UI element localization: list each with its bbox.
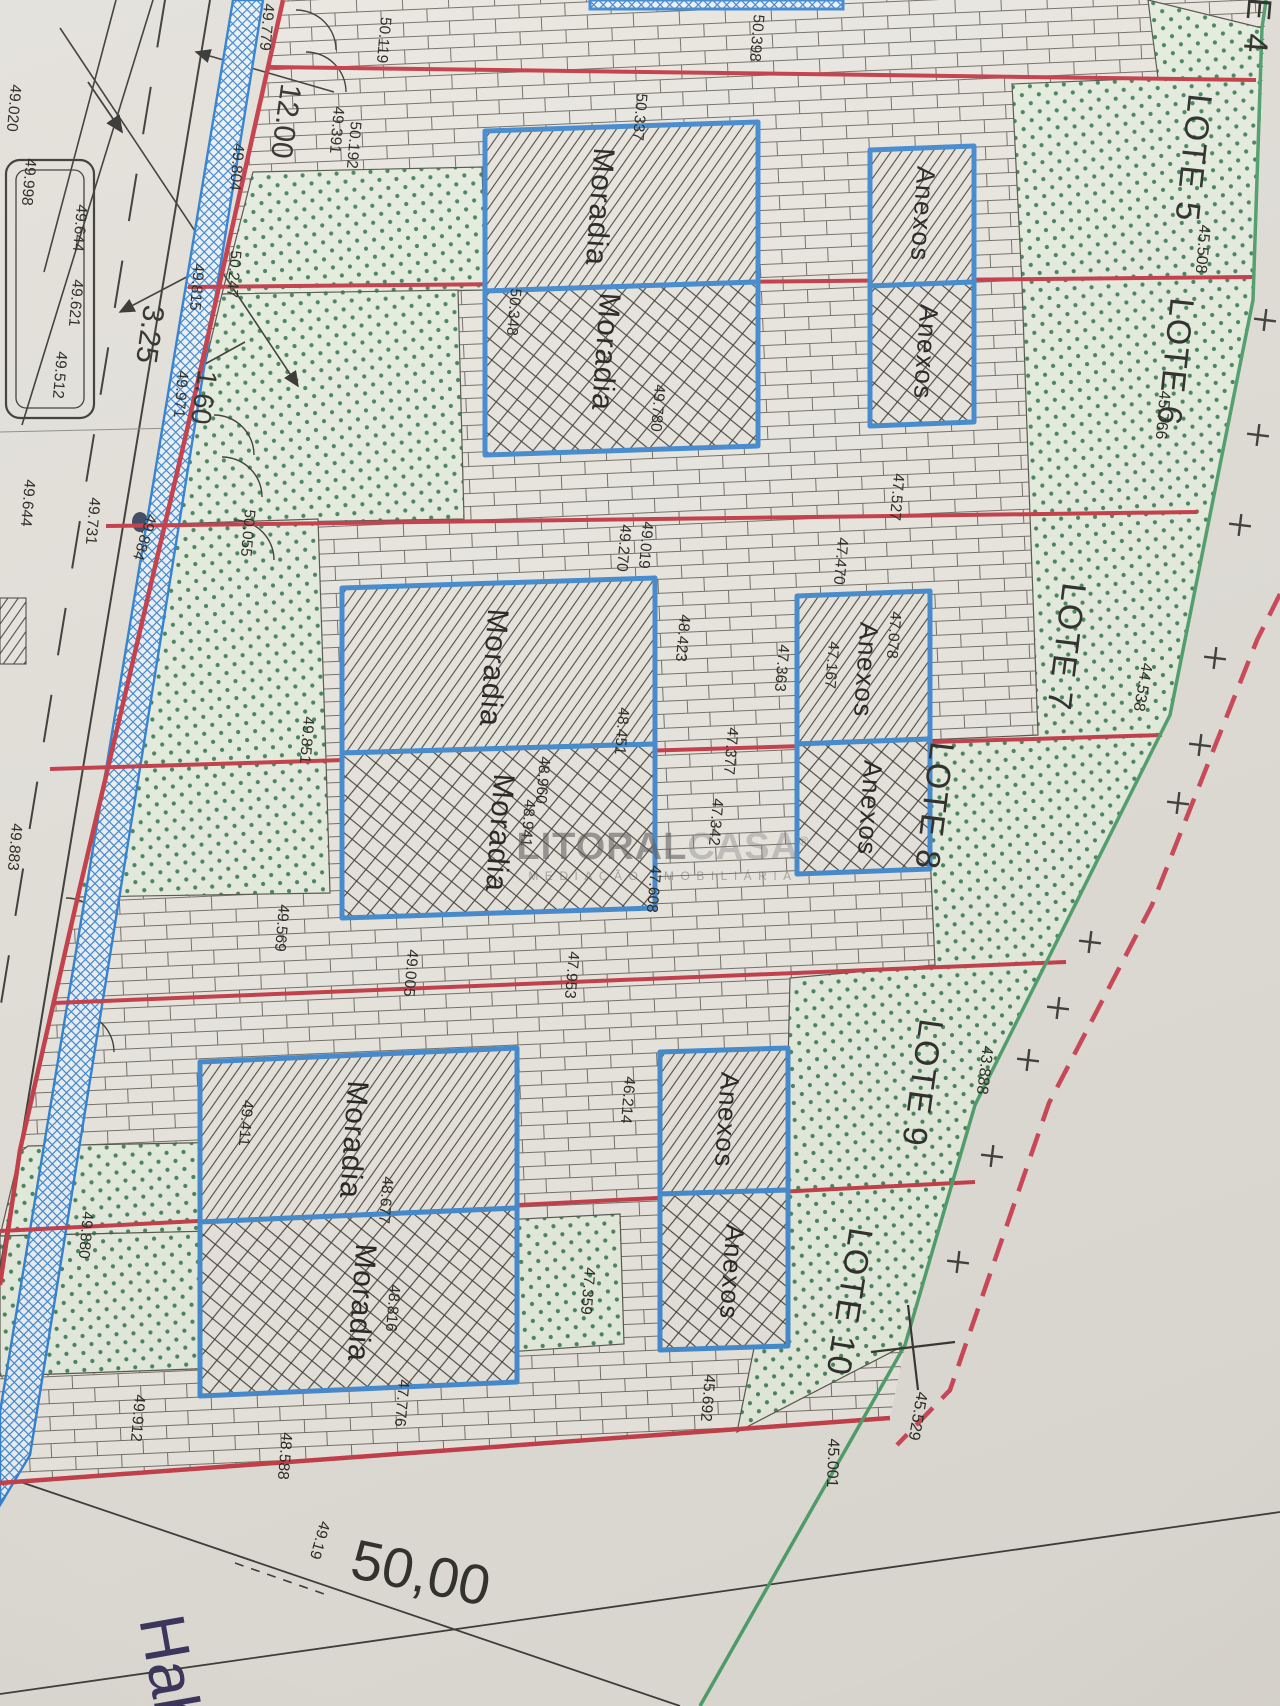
moradia-1-upper bbox=[485, 122, 758, 291]
site-plan-photo: MoradiaMoradiaAnexosAnexosMoradiaMoradia… bbox=[0, 0, 1280, 1706]
site-plan-drawing: MoradiaMoradiaAnexosAnexosMoradiaMoradia… bbox=[0, 0, 1280, 1706]
lawn-front-strip bbox=[222, 167, 486, 294]
rooftop-sliver bbox=[590, 0, 843, 9]
lot-label: E 4 bbox=[1236, 0, 1279, 56]
elevation-label: 45.001 bbox=[823, 1438, 842, 1488]
hatched-patch bbox=[0, 598, 26, 664]
